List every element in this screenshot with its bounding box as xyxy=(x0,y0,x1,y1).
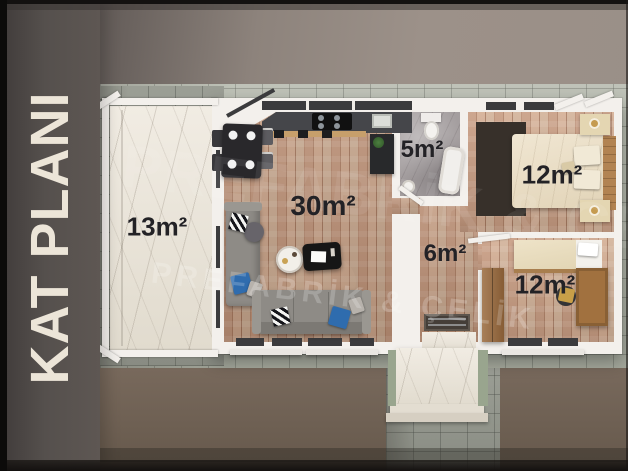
bedroom1-window-2 xyxy=(524,102,554,110)
plate-2 xyxy=(246,131,255,140)
window-sill-3 xyxy=(502,349,584,355)
window-sill-1 xyxy=(230,349,302,355)
bedroom2-window-2 xyxy=(548,338,578,346)
bedroom2-door-gap xyxy=(478,244,482,270)
room-label-bathroom: 5m² xyxy=(401,136,444,164)
cup-gold xyxy=(282,258,288,264)
frame-bottom xyxy=(0,460,628,471)
burner-3 xyxy=(318,123,324,129)
frame-top-line xyxy=(0,4,628,10)
living-window-1 xyxy=(236,338,264,346)
desk xyxy=(576,268,608,326)
porch-step-2 xyxy=(386,413,488,422)
pillow-patterned-2 xyxy=(270,306,290,326)
table-decor xyxy=(330,248,335,256)
room-label-bedroom2: 12m² xyxy=(515,270,576,301)
wardrobe-door-line xyxy=(492,268,493,342)
magazine xyxy=(311,251,326,263)
bar-stool-3 xyxy=(322,130,332,138)
terrace-railing-top xyxy=(102,98,218,105)
plant xyxy=(373,137,384,148)
porch-floor xyxy=(396,348,478,406)
dining-table xyxy=(221,123,263,178)
porch-step-1 xyxy=(390,404,484,413)
bar-stool-2 xyxy=(298,130,308,138)
kitchen-window-mullion-2 xyxy=(352,101,355,110)
wardrobe xyxy=(482,268,504,342)
bar-stool-1 xyxy=(274,130,284,138)
sofa-seam-1 xyxy=(293,292,294,322)
ottoman xyxy=(244,222,264,242)
burner-2 xyxy=(334,115,340,121)
terrace-railing-left xyxy=(102,98,109,357)
sofa-armrest-left xyxy=(252,290,261,334)
terrace-door-glass-3 xyxy=(216,290,220,328)
room-label-terrace: 13m² xyxy=(127,212,188,243)
kitchen-window-band xyxy=(262,101,412,110)
terrace-railing-bottom xyxy=(102,350,218,357)
headboard xyxy=(603,136,616,210)
frame-top xyxy=(0,0,628,4)
porch-moss-left xyxy=(388,350,396,406)
kitchen-sink xyxy=(372,114,392,128)
single-bed-duvet xyxy=(514,240,576,270)
bedroom1-door-gap xyxy=(460,206,468,232)
frame-left xyxy=(0,0,7,471)
cup-dark xyxy=(292,252,297,257)
chaise-armrest xyxy=(224,202,262,211)
plate-1 xyxy=(228,131,237,140)
sofa-armrest-right xyxy=(362,290,371,334)
terrace-door-glass-2 xyxy=(216,226,220,268)
floor-plan-render: PREFABRİK & ÇELİK PREFABRİK & ÇELİK 13m²… xyxy=(0,0,628,471)
burner-1 xyxy=(318,115,324,121)
plate-3 xyxy=(227,160,236,169)
burner-4 xyxy=(334,123,340,129)
room-label-bedroom1: 12m² xyxy=(522,160,583,191)
bedroom1-window-1 xyxy=(486,102,516,110)
plan-title: KAT PLANI xyxy=(19,92,81,385)
living-window-4 xyxy=(350,338,374,346)
bedroom2-window-1 xyxy=(508,338,542,346)
kitchen-window-mullion-1 xyxy=(306,101,309,110)
room-label-living: 30m² xyxy=(290,190,355,222)
mat-bar-2 xyxy=(428,324,466,326)
porch-moss-right xyxy=(478,350,488,406)
living-window-2 xyxy=(272,338,302,346)
living-window-3 xyxy=(308,338,342,346)
round-side-table xyxy=(276,246,303,273)
plate-4 xyxy=(245,160,254,169)
window-sill-2 xyxy=(306,349,378,355)
bed2-pillow xyxy=(578,242,599,256)
terrace-floor-seam xyxy=(121,110,123,346)
dining-chair-right-2 xyxy=(260,152,273,169)
mat-bar-1 xyxy=(428,318,466,320)
entrance-mat xyxy=(424,314,470,331)
coffee-table xyxy=(302,242,342,272)
lamp-top xyxy=(589,118,600,129)
room-label-hallway: 6m² xyxy=(424,240,467,268)
lamp-bottom xyxy=(589,205,600,216)
